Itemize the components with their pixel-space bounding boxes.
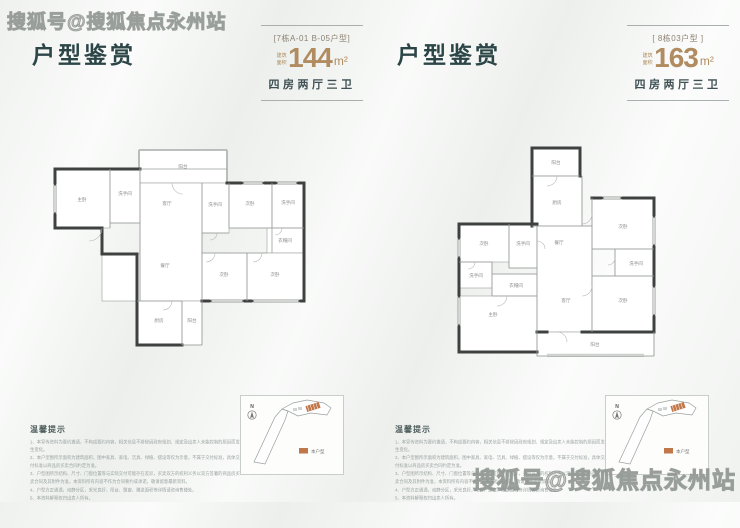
- legend: 本户型: [299, 448, 325, 455]
- page-title: 户型鉴赏: [397, 36, 501, 70]
- divider: [261, 25, 363, 26]
- room-label: 洗手间: [469, 272, 483, 279]
- room-label: 次卧: [219, 271, 229, 278]
- unit-spec-block: [ 8栋03户型 ] 建筑面积 163 m² 四房两厅三卫: [627, 25, 729, 101]
- floor-plan-163: 阳台 厨房 次卧 次卧 洗手间 餐厅 洗手间 洗手间 衣帽间 客厅 次卧 主卧 …: [447, 146, 709, 364]
- tip-line: 2、本户型图所示面积为建筑面积，图中家具、家电、洁具、绿植、摆设等仅为示意，不属…: [30, 455, 240, 471]
- tips-heading: 温馨提示: [395, 424, 605, 435]
- area-prefix: 建筑面积: [276, 53, 287, 66]
- room-count-text: 四房两厅三卫: [627, 76, 729, 92]
- room-label: 阳台: [551, 159, 561, 166]
- tips-section: 温馨提示 1、本宣传资料为要约邀请，不构成要约内容，相关信息不排除因政府规划、规…: [30, 424, 240, 528]
- room-label: 阳台: [187, 317, 197, 324]
- legend-label: 本户型: [311, 448, 325, 455]
- north-label: N: [250, 404, 254, 410]
- site-plan-box: N 本户型: [240, 395, 344, 475]
- room-label: 洗手间: [516, 240, 530, 247]
- divider: [627, 25, 729, 26]
- room-label: 阳台: [590, 341, 600, 348]
- watermark-bottom-right: 搜狐号@搜狐焦点永州站: [473, 461, 736, 495]
- room-label: 客厅: [561, 297, 571, 304]
- room-label: 衣帽间: [509, 282, 523, 289]
- site-plan-map: N 本户型: [241, 396, 341, 470]
- north-label: N: [615, 404, 619, 410]
- room-label: 次卧: [245, 200, 255, 207]
- room-label: 衣帽间: [278, 237, 292, 244]
- divider: [627, 100, 729, 101]
- room-label: 餐厅: [554, 239, 564, 246]
- legend-label: 本户型: [676, 448, 690, 455]
- room-label: 客厅: [162, 200, 172, 207]
- floorplan-panel-144: 户型鉴赏 [7栋A-01 B-05户型] 建筑面积 144 m² 四房两厅三卫: [20, 20, 365, 490]
- watermark-top-left: 搜狐号@搜狐焦点永州站: [7, 7, 227, 34]
- north-arrow-icon: [613, 411, 621, 419]
- tips-lines: 1、本宣传资料为要约邀请，不构成要约内容，相关信息不排除因政府规划、规定及出卖人…: [30, 439, 240, 503]
- floor-plan-144: 阳台 主卧 洗手间 客厅 洗手间 次卧 洗手间 衣帽间 餐厅 次卧 次卧 厨房 …: [52, 148, 344, 360]
- room-label: 次卧: [479, 240, 489, 247]
- tips-heading: 温馨提示: [30, 424, 240, 435]
- floor-plan-rooms: [55, 150, 304, 345]
- tip-line: 4、户型方正通透，动静分区，采光良好，阳台、飘窗、赠送面积等详情请咨询售楼处。: [30, 487, 240, 495]
- area-unit: m²: [334, 54, 348, 68]
- legend-swatch: [664, 448, 673, 454]
- room-label: 厨房: [154, 317, 164, 324]
- site-outline: [619, 400, 696, 464]
- tip-line: 1、本宣传资料为要约邀请，不构成要约内容，相关信息不排除因政府规划、规定及出卖人…: [30, 439, 240, 455]
- legend: 本户型: [664, 448, 690, 455]
- room-label: 次卧: [270, 271, 280, 278]
- room-label: 阳台: [178, 163, 188, 170]
- north-arrow-icon: [248, 411, 256, 419]
- room-label: 次卧: [618, 223, 628, 230]
- area-value: 163: [654, 46, 698, 70]
- tip-line: 3、户型图所示结构、尺寸、门窗位置等与实际交付可能存在差异，买卖双方的权利义务以…: [30, 471, 240, 487]
- area-row: 建筑面积 163 m²: [627, 46, 729, 70]
- legend-swatch: [299, 448, 308, 454]
- site-plan-map: N 本户型: [606, 396, 706, 470]
- divider: [261, 100, 363, 101]
- floorplan-panel-163: 户型鉴赏 [ 8栋03户型 ] 建筑面积 163 m² 四房两厅三卫: [385, 20, 730, 490]
- area-unit: m²: [700, 54, 714, 68]
- room-label: 次卧: [618, 297, 628, 304]
- area-prefix: 建筑面积: [642, 53, 653, 66]
- site-outline: [254, 400, 331, 464]
- room-label: 餐厅: [160, 262, 170, 269]
- room-label: 洗手间: [208, 201, 222, 208]
- room-label: 洗手间: [118, 190, 132, 197]
- room-label: 洗手间: [629, 260, 643, 267]
- room-count-text: 四房两厅三卫: [261, 76, 363, 92]
- area-row: 建筑面积 144 m²: [261, 46, 363, 70]
- page-title: 户型鉴赏: [32, 36, 136, 70]
- room-label: 洗手间: [281, 199, 295, 206]
- area-value: 144: [288, 46, 332, 70]
- unit-spec-block: [7栋A-01 B-05户型] 建筑面积 144 m² 四房两厅三卫: [261, 25, 363, 101]
- room-label: 厨房: [552, 199, 562, 206]
- room-label: 主卧: [77, 196, 87, 203]
- room-label: 主卧: [488, 311, 498, 318]
- tip-line: 1、本宣传资料为要约邀请，不构成要约内容，相关信息不排除因政府规划、规定及出卖人…: [395, 439, 605, 455]
